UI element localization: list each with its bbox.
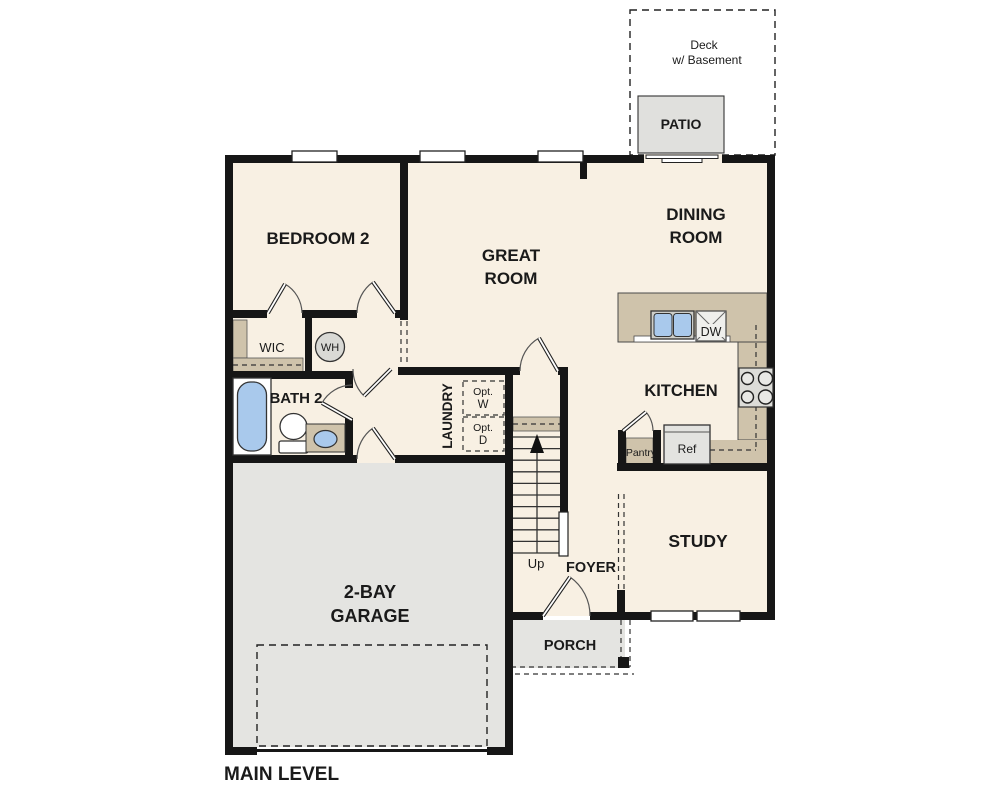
bedroom2-window	[292, 151, 337, 162]
dining-room-label-1: DINING	[666, 205, 726, 224]
bathtub	[233, 378, 271, 455]
garage-label-1: 2-BAY	[344, 582, 396, 602]
bath2-label: BATH 2	[269, 390, 322, 407]
study-window-1	[651, 611, 693, 621]
opt-dryer-label-2: D	[479, 435, 487, 447]
foyer-label: FOYER	[566, 560, 616, 576]
stair-railing	[559, 512, 568, 556]
study-label: STUDY	[668, 531, 728, 551]
patio-sliding-door	[644, 154, 722, 164]
bedroom2-label: BEDROOM 2	[267, 229, 370, 248]
great-room-window-2	[538, 151, 583, 162]
deck-label-1: Deck	[690, 38, 718, 52]
floor-plan-drawing: BEDROOM 2 GREAT ROOM DINING ROOM KITCHEN…	[0, 0, 1000, 800]
great-room-label-1: GREAT	[482, 246, 541, 265]
opt-washer-label-2: W	[478, 399, 489, 411]
water-heater-label: WH	[321, 342, 339, 354]
opt-washer-label-1: Opt.	[473, 386, 493, 398]
study-window-2	[697, 611, 740, 621]
stairs-up-label: Up	[528, 556, 545, 571]
patio-label: PATIO	[661, 116, 702, 132]
garage-floor	[233, 463, 505, 747]
great-room-label-2: ROOM	[485, 269, 538, 288]
stair-closet-shelf	[513, 417, 560, 431]
refrigerator-label: Ref	[678, 442, 697, 456]
dining-room-label-2: ROOM	[670, 228, 723, 247]
laundry-label: LAUNDRY	[440, 383, 455, 449]
garage-label-2: GARAGE	[330, 606, 409, 626]
plan-title: MAIN LEVEL	[224, 764, 339, 785]
pantry-label: Pantry	[626, 447, 657, 459]
dishwasher-label: DW	[701, 325, 722, 339]
wic-label: WIC	[259, 340, 284, 355]
stove	[739, 368, 773, 407]
vanity-sink	[306, 424, 345, 452]
great-room-window-1	[420, 151, 465, 162]
porch-label: PORCH	[544, 638, 596, 654]
toilet	[279, 414, 308, 454]
kitchen-label: KITCHEN	[644, 382, 717, 400]
deck-label-2: w/ Basement	[671, 53, 742, 67]
floor-plan-page: BEDROOM 2 GREAT ROOM DINING ROOM KITCHEN…	[0, 0, 1000, 800]
kitchen-sink	[651, 311, 694, 339]
opt-dryer-label-1: Opt.	[473, 422, 493, 434]
